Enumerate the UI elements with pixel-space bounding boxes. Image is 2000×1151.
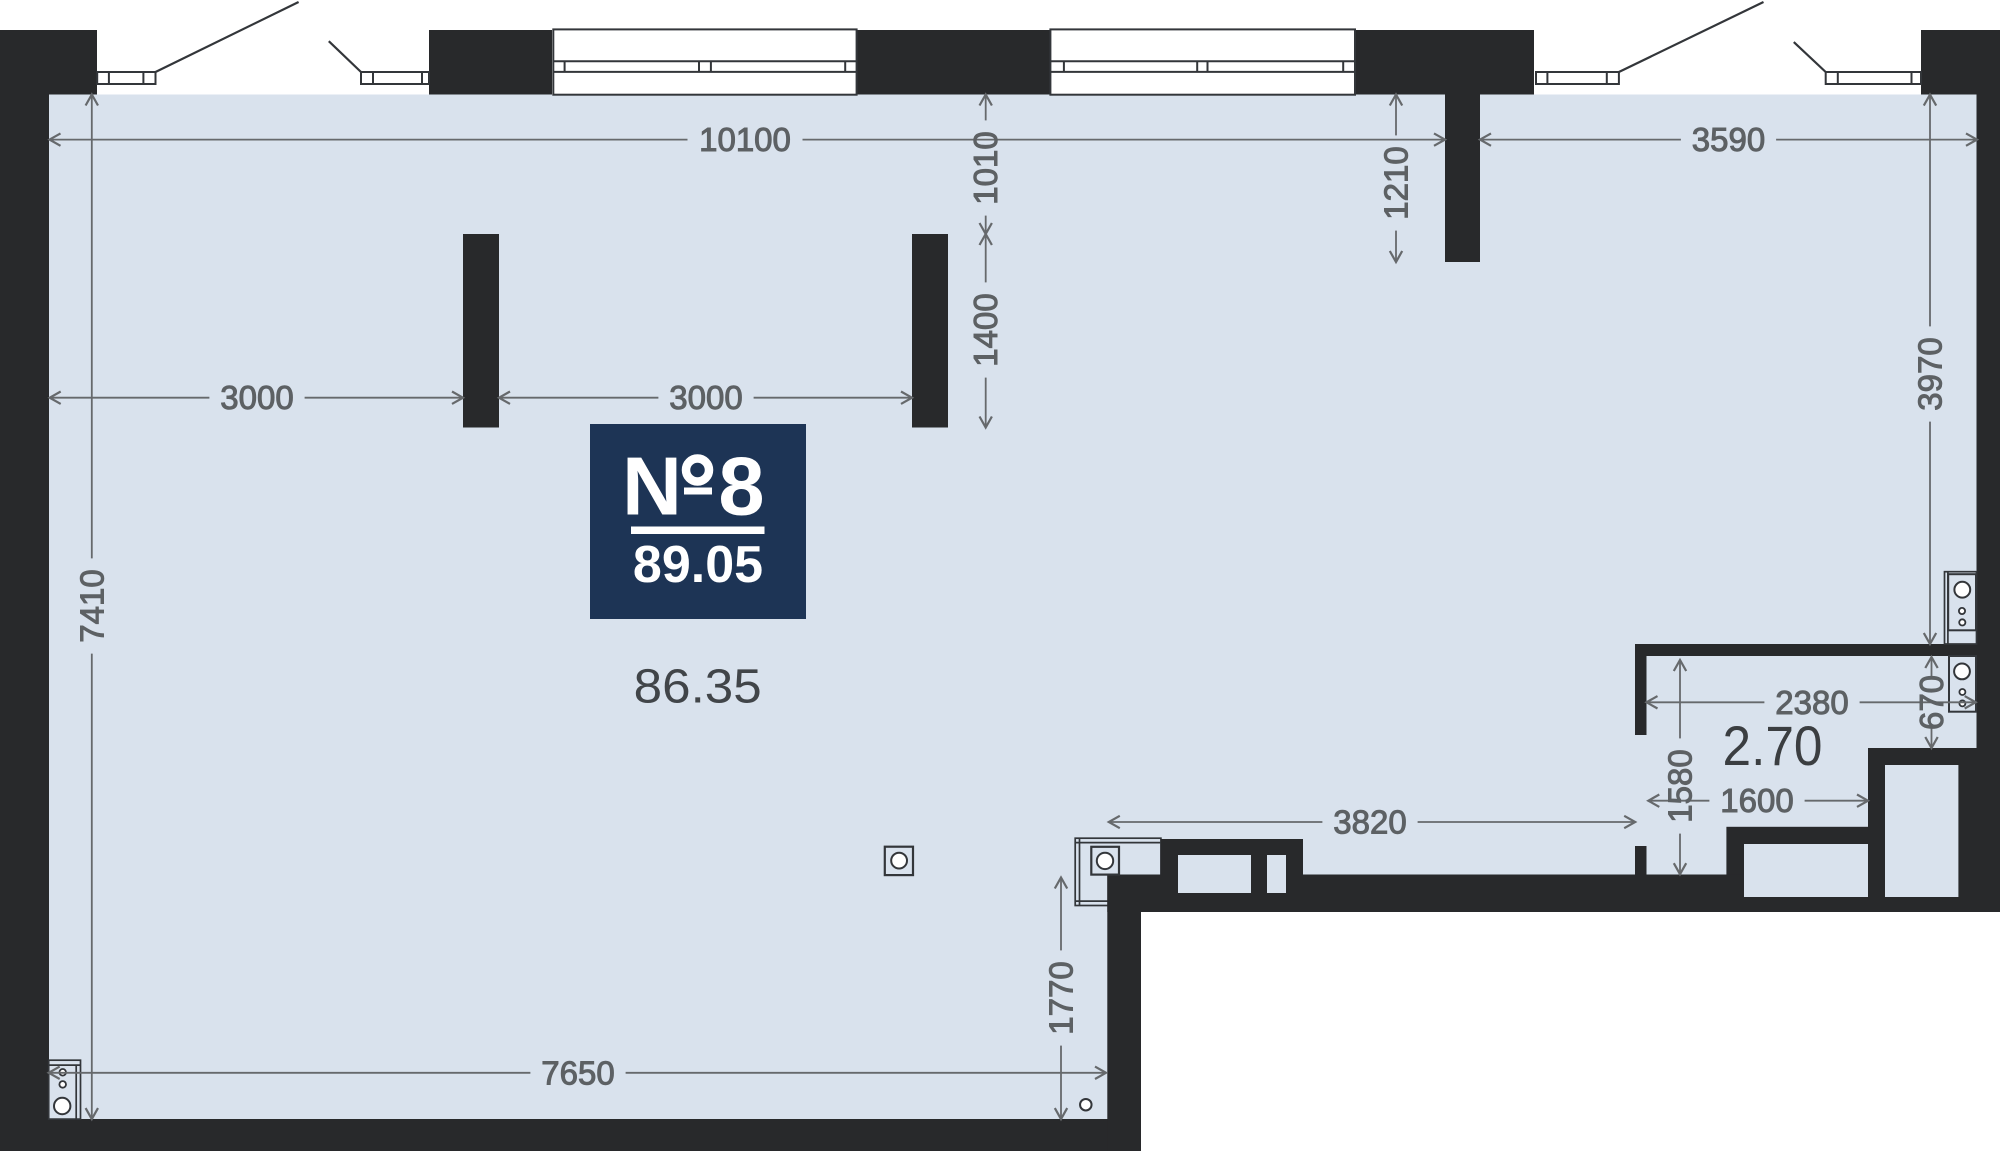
svg-text:1580: 1580 xyxy=(1662,749,1699,822)
svg-text:3000: 3000 xyxy=(669,379,742,416)
svg-text:2.70: 2.70 xyxy=(1723,714,1823,777)
svg-text:3590: 3590 xyxy=(1692,121,1765,158)
svg-text:3000: 3000 xyxy=(220,379,293,416)
svg-text:1210: 1210 xyxy=(1378,146,1415,219)
svg-text:8: 8 xyxy=(718,440,764,533)
svg-text:1400: 1400 xyxy=(967,293,1004,366)
svg-text:3970: 3970 xyxy=(1912,337,1949,410)
svg-text:1010: 1010 xyxy=(967,131,1004,204)
svg-text:N: N xyxy=(622,440,682,533)
svg-text:86.35: 86.35 xyxy=(634,661,762,714)
svg-text:3820: 3820 xyxy=(1333,804,1406,841)
svg-text:1600: 1600 xyxy=(1720,782,1793,819)
svg-text:670: 670 xyxy=(1913,675,1950,730)
svg-text:89.05: 89.05 xyxy=(633,536,763,594)
svg-text:1770: 1770 xyxy=(1043,961,1080,1034)
svg-text:10100: 10100 xyxy=(699,121,791,158)
svg-text:7410: 7410 xyxy=(73,569,110,642)
svg-text:7650: 7650 xyxy=(541,1054,614,1091)
